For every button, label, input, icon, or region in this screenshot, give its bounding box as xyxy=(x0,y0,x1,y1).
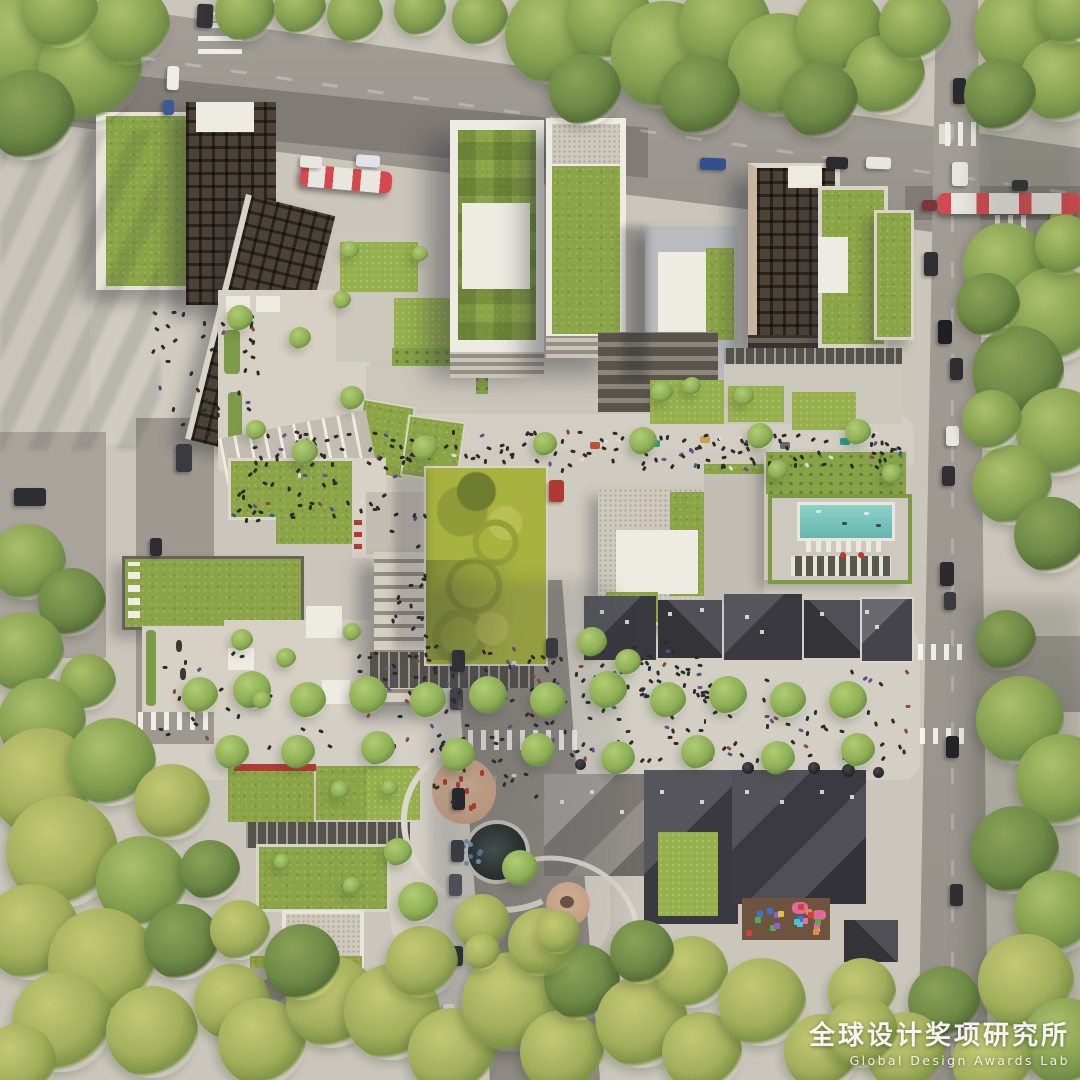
pedestrian xyxy=(650,655,653,660)
umbrella xyxy=(322,680,350,704)
pedestrian xyxy=(487,651,492,654)
pool-lounger xyxy=(876,541,881,552)
tree-canopy xyxy=(349,676,387,714)
play-equipment xyxy=(774,923,780,929)
watermark-title-zh: 全球设计奖项研究所 xyxy=(809,1022,1070,1051)
tree-canopy xyxy=(134,764,210,840)
crosswalk xyxy=(138,712,212,730)
tree-canopy xyxy=(577,627,607,657)
pedestrian xyxy=(626,729,631,732)
turret xyxy=(742,762,754,774)
pool-umbrella xyxy=(840,552,846,558)
pedestrian xyxy=(409,583,414,586)
tree-canopy xyxy=(452,0,508,46)
pool-lounger xyxy=(856,541,861,552)
car xyxy=(150,538,162,556)
gray-slab-building xyxy=(704,464,764,602)
pool-umbrella xyxy=(858,552,864,558)
dormer xyxy=(560,800,564,804)
tree-canopy xyxy=(521,733,555,767)
play-equipment xyxy=(802,918,808,924)
crosswalk xyxy=(918,644,970,660)
heritage-small-house xyxy=(844,920,898,962)
pedestrian xyxy=(288,487,291,492)
play-equipment xyxy=(757,911,763,917)
tree-canopy xyxy=(246,420,266,440)
play-equipment xyxy=(813,929,819,935)
tree-canopy xyxy=(829,681,867,719)
umbrella xyxy=(306,606,342,638)
dormer xyxy=(875,625,879,629)
ne-green-building xyxy=(874,210,914,340)
tram xyxy=(938,193,1080,214)
tree-canopy xyxy=(533,432,557,456)
pedestrian xyxy=(331,462,334,467)
car xyxy=(549,480,564,502)
turret xyxy=(808,762,820,774)
tree-canopy xyxy=(589,671,627,709)
tree-canopy xyxy=(398,882,438,922)
dormer xyxy=(780,800,784,804)
tree-canopy xyxy=(343,877,361,895)
pool-lounger xyxy=(846,541,851,552)
tree-canopy xyxy=(882,464,902,484)
car xyxy=(922,200,937,211)
tree-canopy xyxy=(331,781,349,799)
pedestrian xyxy=(302,473,307,477)
tree-canopy xyxy=(681,735,715,769)
tree-canopy xyxy=(469,676,507,714)
tree-canopy xyxy=(650,682,686,718)
dormer xyxy=(590,790,594,794)
play-equipment xyxy=(815,919,821,925)
ml-gray-slab xyxy=(366,492,424,554)
deer-sculpture xyxy=(180,668,186,680)
car xyxy=(946,736,959,758)
s-green-roof xyxy=(228,768,314,822)
tree-canopy xyxy=(227,305,253,331)
watermark-subtitle-en: Global Design Awards Lab xyxy=(809,1053,1070,1068)
pedestrian xyxy=(346,433,351,436)
tree-canopy xyxy=(770,682,806,718)
pool-lounger xyxy=(816,541,821,552)
tree-canopy xyxy=(276,648,296,668)
pedestrian xyxy=(368,656,373,659)
ne-dark-tower-cap xyxy=(788,166,822,188)
tree-canopy xyxy=(180,840,240,900)
pedestrian xyxy=(512,661,517,664)
pedestrian xyxy=(765,714,770,717)
tree-canopy xyxy=(182,677,218,713)
tree-canopy xyxy=(144,904,220,980)
pedestrian xyxy=(325,438,330,441)
pedestrian xyxy=(242,495,245,500)
play-equipment xyxy=(808,912,814,918)
tree-canopy xyxy=(956,273,1020,337)
pedestrian xyxy=(414,676,419,679)
tower-pebble-deck xyxy=(552,124,620,164)
dormer xyxy=(820,790,824,794)
swimmer xyxy=(842,522,847,525)
turret xyxy=(873,767,884,778)
pedestrian xyxy=(668,736,673,739)
tree-canopy xyxy=(660,55,740,135)
pedestrian xyxy=(704,719,707,724)
dormer xyxy=(660,790,664,794)
pedestrian xyxy=(587,452,592,455)
pedestrian xyxy=(611,459,614,464)
pedestrian xyxy=(805,731,808,736)
tree-canopy xyxy=(333,291,351,309)
pedestrian xyxy=(304,433,309,436)
pedestrian xyxy=(359,509,362,514)
aerial-render-canvas: 全球设计奖项研究所 Global Design Awards Lab xyxy=(0,0,1080,1080)
tree-canopy xyxy=(709,676,747,714)
car xyxy=(1012,180,1028,191)
pedestrian xyxy=(310,501,315,504)
pedestrian xyxy=(528,432,533,435)
car xyxy=(826,157,848,170)
crosswalk xyxy=(920,728,968,744)
pedestrian xyxy=(413,654,418,658)
car xyxy=(300,155,323,169)
pedestrian xyxy=(571,449,576,452)
pedestrian xyxy=(445,682,448,687)
pedestrian xyxy=(259,510,264,514)
pool-lounger xyxy=(866,541,871,552)
heritage-roof xyxy=(860,597,914,663)
garden-planting xyxy=(476,859,481,864)
pedestrian xyxy=(323,474,328,477)
swimmer xyxy=(864,512,869,515)
tree-canopy xyxy=(386,926,458,998)
pedestrian xyxy=(484,458,487,463)
pedestrian xyxy=(159,386,162,391)
tree-canopy xyxy=(845,419,871,445)
hedge-strip xyxy=(704,464,764,474)
tree-canopy xyxy=(281,735,315,769)
dormer xyxy=(820,612,824,616)
pedestrian xyxy=(564,730,567,735)
balcony-red xyxy=(354,544,362,549)
car xyxy=(942,466,955,486)
dormer xyxy=(700,608,704,612)
car xyxy=(546,638,558,658)
ml-green-roof xyxy=(276,512,354,544)
tree-canopy xyxy=(841,733,875,767)
balcony-red xyxy=(354,520,362,525)
dormer xyxy=(850,795,854,799)
pedestrian xyxy=(270,513,275,517)
pedestrian xyxy=(392,474,397,478)
pedestrian xyxy=(586,701,591,704)
play-equipment xyxy=(480,770,484,776)
tree-canopy xyxy=(410,682,446,718)
play-equipment xyxy=(746,930,752,936)
play-equipment xyxy=(778,911,784,917)
pedestrian xyxy=(291,515,296,518)
pool-lounger xyxy=(836,541,841,552)
heritage-roof xyxy=(724,594,802,660)
play-equipment xyxy=(469,805,473,811)
tree-canopy xyxy=(289,327,311,349)
pedestrian xyxy=(697,672,702,676)
swimmer xyxy=(816,510,821,513)
play-equipment xyxy=(767,908,773,914)
pedestrian xyxy=(906,705,911,708)
tree-canopy xyxy=(768,460,788,480)
pedestrian xyxy=(686,671,689,676)
play-equipment xyxy=(794,919,800,925)
pedestrian xyxy=(721,455,726,459)
dormer xyxy=(700,800,704,804)
pedestrian xyxy=(511,664,516,668)
tree-canopy xyxy=(264,924,340,1000)
tree-canopy xyxy=(615,649,641,675)
pedestrian xyxy=(424,573,427,578)
car xyxy=(356,154,381,168)
pedestrian xyxy=(903,750,906,755)
pedestrian xyxy=(332,514,336,519)
pergola xyxy=(256,296,280,312)
car xyxy=(866,157,891,170)
pedestrian xyxy=(697,664,702,667)
pedestrian xyxy=(361,500,364,505)
midrise-green-roof xyxy=(706,248,734,340)
market-stall xyxy=(590,442,600,449)
pedestrian xyxy=(604,440,609,443)
s-green-roof xyxy=(256,844,390,912)
garden-planting xyxy=(468,854,473,859)
pedestrian xyxy=(166,360,171,363)
pedestrian xyxy=(870,442,873,447)
lane-dashes xyxy=(951,120,954,1060)
pedestrian xyxy=(695,655,700,658)
tree-canopy xyxy=(394,0,446,36)
pedestrian xyxy=(512,774,517,777)
tree-canopy xyxy=(253,691,271,709)
pedestrian xyxy=(276,457,279,462)
pedestrian xyxy=(459,701,462,706)
car xyxy=(924,252,938,276)
tower-green-roof xyxy=(552,166,620,334)
tree-canopy xyxy=(340,386,364,410)
dormer xyxy=(620,810,624,814)
tree-canopy xyxy=(651,381,673,403)
car xyxy=(938,320,952,344)
dormer xyxy=(745,790,749,794)
play-equipment xyxy=(443,779,447,785)
play-equipment xyxy=(798,904,804,910)
pedestrian xyxy=(891,448,896,451)
house-courtyard-green xyxy=(658,832,718,916)
pedestrian xyxy=(692,689,695,694)
pedestrian xyxy=(699,729,704,732)
tree-canopy xyxy=(327,0,383,43)
tree-canopy xyxy=(1014,497,1080,573)
pedestrian xyxy=(465,724,470,727)
ml-green-roof xyxy=(228,458,360,520)
pedestrian xyxy=(358,669,363,672)
swimmer xyxy=(876,524,881,527)
ne-roof-notch xyxy=(818,237,848,293)
car xyxy=(952,162,968,186)
dormer xyxy=(625,620,629,624)
tree-canopy xyxy=(747,423,773,449)
balcony-red xyxy=(354,532,362,537)
tree-canopy xyxy=(274,854,290,870)
heritage-large-house xyxy=(732,770,866,904)
tree-canopy xyxy=(464,934,500,970)
pedestrian xyxy=(662,458,667,461)
deer-green-roof xyxy=(122,556,304,630)
dormer xyxy=(865,610,869,614)
nw-dark-tower-cap xyxy=(196,102,254,132)
pedestrian xyxy=(373,431,378,435)
pool-lounger xyxy=(826,541,831,552)
pedestrian xyxy=(417,615,422,618)
dormer xyxy=(760,630,764,634)
nw-green-roof-tower xyxy=(96,112,200,290)
dormer xyxy=(600,610,604,614)
tram xyxy=(299,164,393,194)
tree-canopy xyxy=(441,738,475,772)
car xyxy=(163,100,174,115)
midrise-roof-slab xyxy=(658,252,706,336)
tree-canopy xyxy=(292,439,318,465)
plaza-building-slab xyxy=(616,530,698,594)
tree-canopy xyxy=(412,246,428,262)
trellis xyxy=(724,348,902,364)
tree-canopy xyxy=(290,682,326,718)
watermark: 全球设计奖项研究所 Global Design Awards Lab xyxy=(809,1022,1070,1068)
tower-roof-slab xyxy=(462,203,530,289)
car xyxy=(950,358,963,380)
roof-pavers xyxy=(128,562,140,618)
tree-canopy xyxy=(382,780,398,796)
pedestrian xyxy=(766,724,769,729)
car xyxy=(196,4,213,29)
tree-canopy xyxy=(683,377,701,395)
tree-canopy xyxy=(610,920,674,984)
car xyxy=(167,66,180,90)
car xyxy=(946,426,959,446)
tree-canopy xyxy=(502,850,538,886)
tree-canopy xyxy=(976,610,1036,670)
cabana-row xyxy=(791,556,891,576)
pedestrian xyxy=(434,670,437,675)
pedestrian xyxy=(426,645,431,648)
pedestrian xyxy=(266,502,271,505)
tree-canopy xyxy=(231,629,253,651)
tree-canopy xyxy=(601,741,635,775)
pedestrian xyxy=(205,399,208,404)
pedestrian xyxy=(665,435,668,440)
pool-lounger xyxy=(806,541,811,552)
car xyxy=(944,592,956,610)
tree-canopy xyxy=(782,62,858,138)
tree-canopy xyxy=(962,390,1022,450)
tree-canopy xyxy=(361,731,395,765)
heritage-roof xyxy=(804,600,860,658)
pedestrian xyxy=(202,321,205,326)
tree-canopy xyxy=(210,900,270,960)
tower-facade xyxy=(450,352,544,378)
play-equipment xyxy=(465,788,469,794)
tree-canopy xyxy=(412,435,438,461)
pedestrian xyxy=(391,438,396,441)
pedestrian xyxy=(279,447,284,450)
central-lawn xyxy=(424,466,548,666)
car xyxy=(451,840,464,862)
tree-canopy xyxy=(964,59,1036,131)
tree-canopy xyxy=(341,241,359,259)
tree-canopy xyxy=(274,0,326,34)
tree-canopy xyxy=(734,386,754,406)
pedestrian xyxy=(880,441,883,446)
pedestrian xyxy=(239,654,244,657)
tree-canopy xyxy=(549,54,621,126)
tree-canopy xyxy=(343,623,361,641)
play-equipment xyxy=(456,782,460,788)
garden-planting xyxy=(478,849,483,854)
tree-canopy xyxy=(215,735,249,769)
planter xyxy=(146,630,156,706)
car xyxy=(700,158,726,171)
tree-canopy xyxy=(384,838,412,866)
car xyxy=(14,488,46,506)
planter xyxy=(224,330,240,374)
pedestrian xyxy=(648,666,651,671)
tree-canopy xyxy=(536,910,580,954)
pedestrian xyxy=(452,430,455,435)
tree-canopy xyxy=(530,682,566,718)
dormer xyxy=(745,615,749,619)
pedestrian xyxy=(674,742,679,745)
market-stall xyxy=(700,436,710,443)
deer-sculpture xyxy=(176,640,182,652)
tree-canopy xyxy=(106,986,198,1078)
pedestrian xyxy=(867,709,870,714)
garden-planting xyxy=(468,842,473,847)
play-equipment xyxy=(755,917,761,923)
dormer xyxy=(668,612,672,616)
pedestrian xyxy=(398,715,403,718)
pedestrian xyxy=(689,448,692,453)
play-equipment xyxy=(459,776,463,782)
pedestrian xyxy=(251,340,255,345)
car xyxy=(449,874,462,896)
pedestrian xyxy=(256,518,261,522)
tree-canopy xyxy=(761,741,795,775)
tree-canopy xyxy=(629,427,657,455)
car xyxy=(940,562,954,586)
bus-stop-marking xyxy=(939,124,951,144)
car xyxy=(950,884,963,906)
car xyxy=(176,444,192,472)
